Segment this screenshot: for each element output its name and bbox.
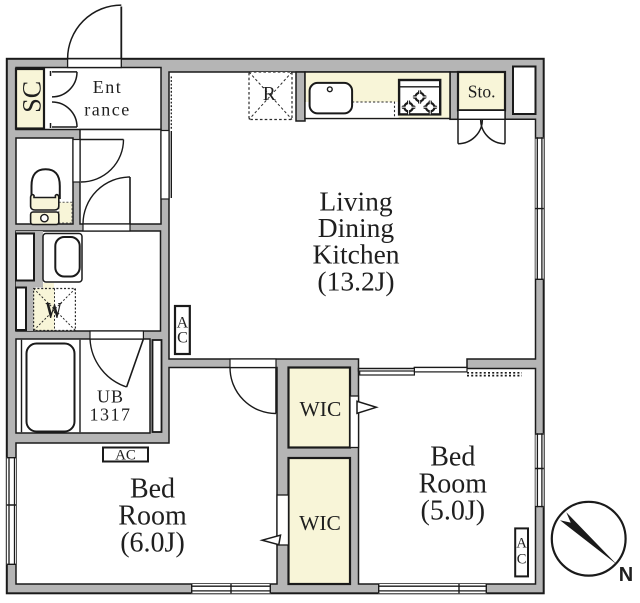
svg-text:R: R bbox=[263, 84, 276, 105]
svg-text:(13.2J): (13.2J) bbox=[317, 265, 394, 296]
svg-text:N: N bbox=[619, 564, 633, 586]
svg-text:Sto.: Sto. bbox=[468, 81, 496, 101]
svg-text:(5.0J): (5.0J) bbox=[421, 496, 486, 527]
svg-text:WIC: WIC bbox=[299, 511, 341, 535]
svg-text:SC: SC bbox=[18, 81, 47, 113]
svg-text:C: C bbox=[517, 552, 527, 568]
svg-text:rance: rance bbox=[84, 100, 130, 120]
svg-text:C: C bbox=[177, 330, 188, 347]
svg-text:Ent: Ent bbox=[93, 77, 123, 97]
svg-text:1317: 1317 bbox=[90, 405, 132, 425]
svg-text:A: A bbox=[516, 536, 527, 552]
svg-text:(6.0J): (6.0J) bbox=[120, 528, 185, 559]
svg-text:UB: UB bbox=[97, 386, 124, 406]
svg-text:AC: AC bbox=[115, 447, 136, 463]
svg-text:W: W bbox=[45, 299, 62, 323]
svg-text:WIC: WIC bbox=[300, 397, 342, 421]
